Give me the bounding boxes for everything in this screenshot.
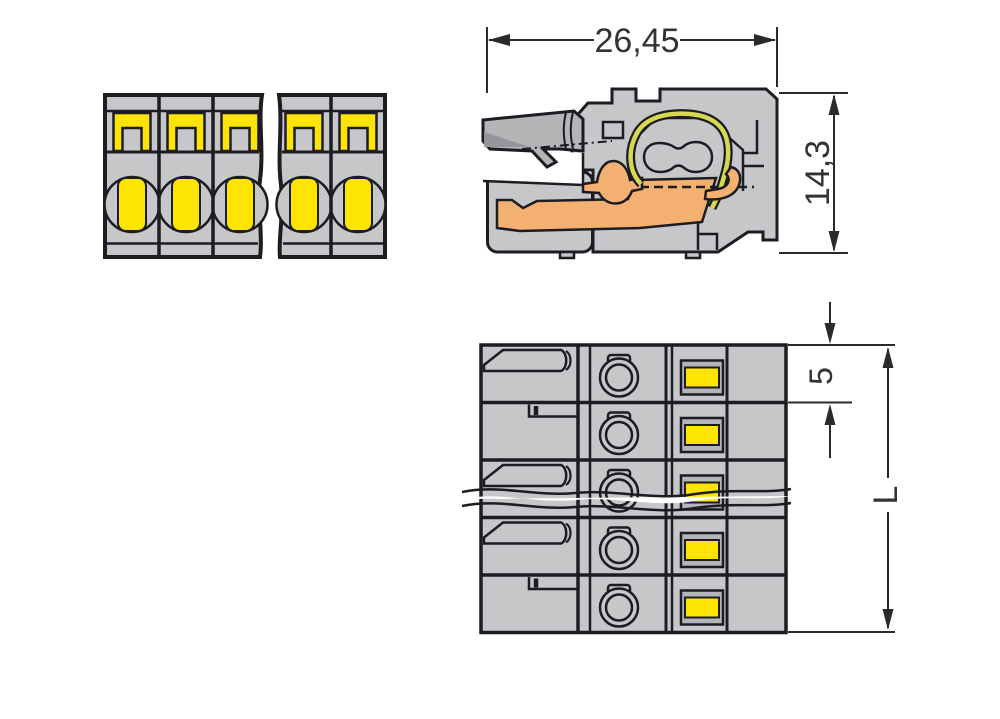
arrowhead-down bbox=[829, 231, 840, 252]
arrowhead-right bbox=[754, 34, 776, 46]
housing-foot bbox=[686, 252, 700, 258]
arrowhead-down bbox=[883, 609, 894, 630]
dimension-width: 26,45 bbox=[487, 22, 777, 93]
housing-foot bbox=[560, 252, 574, 258]
arrowhead-up bbox=[825, 404, 836, 425]
section-view: 26,45 14,3 bbox=[483, 22, 848, 258]
dimension-pitch-label: 5 bbox=[803, 367, 839, 385]
dimension-height: 14,3 bbox=[779, 93, 848, 253]
top-view: 5 L bbox=[462, 302, 905, 633]
dimension-height-label: 14,3 bbox=[799, 140, 837, 206]
front-view-pole-group-right bbox=[277, 95, 386, 257]
technical-drawing: 26,45 14,3 bbox=[0, 0, 1000, 719]
dimension-length: L bbox=[788, 347, 905, 632]
front-view-pole-group-left bbox=[105, 95, 268, 257]
dimension-pitch: 5 bbox=[788, 302, 895, 458]
dimension-length-label: L bbox=[867, 486, 905, 505]
drawing-canvas: 26,45 14,3 bbox=[0, 0, 1000, 719]
arrowhead-up bbox=[829, 94, 840, 115]
arrowhead-down bbox=[825, 323, 836, 344]
front-view bbox=[105, 95, 386, 257]
arrowhead-left bbox=[488, 34, 510, 46]
dimension-width-label: 26,45 bbox=[594, 22, 679, 60]
arrowhead-up bbox=[883, 347, 894, 368]
